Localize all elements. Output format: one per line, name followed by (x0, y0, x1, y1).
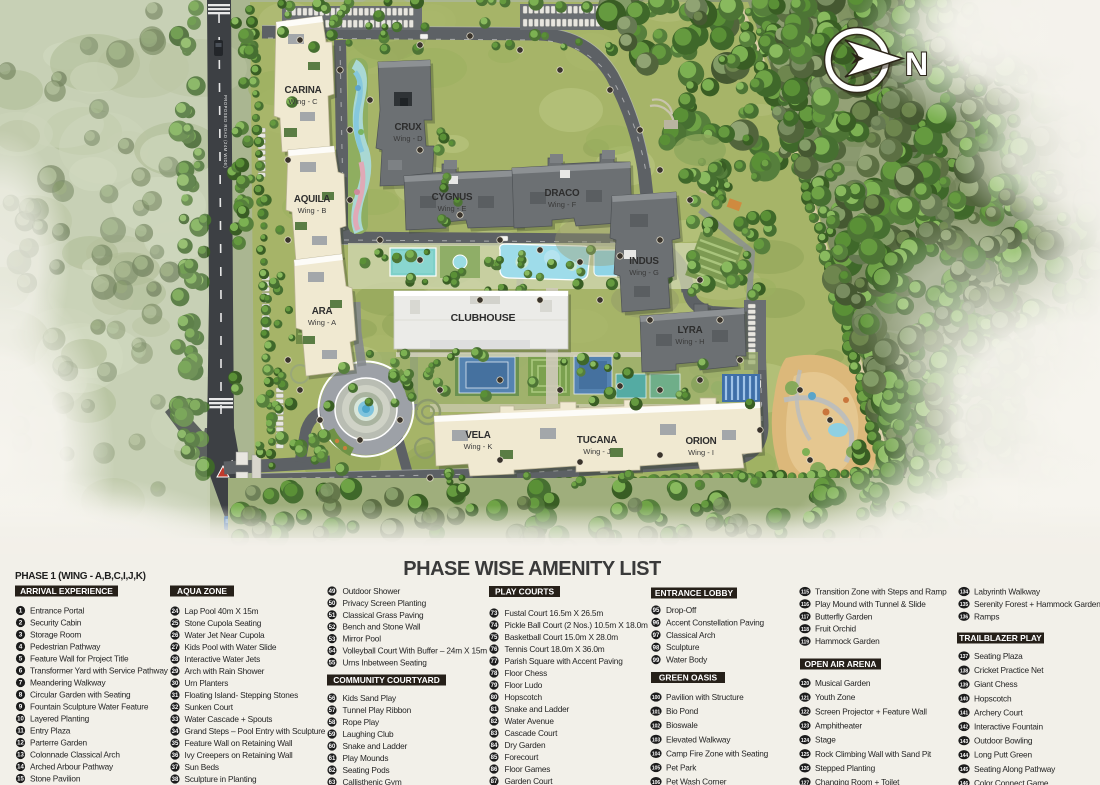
svg-text:Arch with Rain Shower: Arch with Rain Shower (185, 666, 265, 676)
svg-text:Long Putt Green: Long Putt Green (974, 750, 1032, 760)
svg-text:Callisthenic Gym: Callisthenic Gym (343, 777, 402, 785)
svg-text:Feature Wall for Project Title: Feature Wall for Project Title (30, 654, 129, 664)
svg-text:8: 8 (19, 692, 23, 699)
svg-text:Floor Ludo: Floor Ludo (505, 680, 543, 690)
svg-text:Floating Island- Stepping Ston: Floating Island- Stepping Stones (185, 690, 299, 700)
svg-text:105: 105 (652, 766, 661, 772)
svg-text:63: 63 (329, 780, 336, 785)
svg-text:7: 7 (19, 680, 23, 687)
svg-text:95: 95 (653, 608, 660, 614)
svg-text:81: 81 (491, 707, 498, 713)
svg-text:TRAILBLAZER PLAY: TRAILBLAZER PLAY (959, 633, 1042, 643)
svg-text:Wing - E: Wing - E (438, 204, 467, 213)
svg-text:CYGNUS: CYGNUS (432, 192, 473, 203)
svg-text:ARA: ARA (312, 306, 333, 317)
svg-text:134: 134 (960, 590, 969, 596)
svg-text:Security Cabin: Security Cabin (30, 618, 82, 628)
svg-text:Outdoor Shower: Outdoor Shower (343, 586, 401, 596)
svg-text:52: 52 (329, 625, 336, 631)
svg-text:Colonnade Classical Arch: Colonnade Classical Arch (30, 750, 120, 760)
svg-text:Pedestrian Pathway: Pedestrian Pathway (30, 642, 101, 652)
svg-text:87: 87 (491, 779, 498, 785)
svg-text:115: 115 (801, 590, 809, 596)
svg-text:Sculpture: Sculpture (666, 642, 700, 652)
svg-text:140: 140 (960, 697, 969, 703)
svg-text:Garden Court: Garden Court (505, 776, 554, 785)
svg-text:Basketball Court 15.0m X 28.0m: Basketball Court 15.0m X 28.0m (505, 632, 619, 642)
svg-text:58: 58 (329, 720, 336, 726)
svg-text:101: 101 (652, 709, 661, 715)
svg-text:PROPOSED ROAD (24M WIDE): PROPOSED ROAD (24M WIDE) (223, 95, 228, 168)
svg-text:76: 76 (491, 647, 498, 653)
svg-text:Arched Arbour Pathway: Arched Arbour Pathway (30, 762, 114, 772)
svg-text:Cascade Court: Cascade Court (505, 728, 559, 738)
svg-text:80: 80 (491, 695, 498, 701)
svg-text:29: 29 (172, 669, 179, 675)
svg-text:Rope Play: Rope Play (343, 717, 381, 727)
svg-text:24: 24 (172, 609, 179, 615)
svg-text:Wing - H: Wing - H (675, 337, 704, 346)
svg-text:28: 28 (172, 657, 179, 663)
svg-text:36: 36 (172, 753, 179, 759)
svg-text:74: 74 (491, 623, 498, 629)
svg-text:142: 142 (960, 725, 969, 731)
svg-text:AQUA ZONE: AQUA ZONE (177, 586, 227, 596)
svg-text:Volleyball Court With Buffer –: Volleyball Court With Buffer – 24m X 15m (343, 646, 488, 656)
svg-text:122: 122 (801, 710, 810, 716)
svg-text:Wing - G: Wing - G (629, 268, 659, 277)
svg-text:Screen Projector + Feature Wal: Screen Projector + Feature Wall (815, 706, 927, 716)
svg-text:Seating Along Pathway: Seating Along Pathway (974, 764, 1056, 774)
svg-text:137: 137 (960, 654, 969, 660)
svg-text:Snake and Ladder: Snake and Ladder (505, 704, 570, 714)
svg-text:Stepped Planting: Stepped Planting (815, 763, 876, 773)
svg-text:Play Mound with Tunnel & Slide: Play Mound with Tunnel & Slide (815, 599, 926, 609)
svg-text:38: 38 (172, 777, 179, 783)
svg-text:Sculpture in Planting: Sculpture in Planting (185, 774, 257, 784)
svg-text:Elevated Walkway: Elevated Walkway (666, 734, 731, 744)
svg-text:Interactive Fountain: Interactive Fountain (974, 722, 1043, 732)
svg-text:PHASE WISE AMENITY LIST: PHASE WISE AMENITY LIST (403, 558, 661, 580)
svg-text:Hopscotch: Hopscotch (505, 692, 543, 702)
svg-text:GREEN OASIS: GREEN OASIS (659, 673, 718, 683)
svg-text:Entrance Portal: Entrance Portal (30, 606, 85, 616)
svg-text:Seating Pods: Seating Pods (343, 765, 390, 775)
svg-text:Color Connect Game: Color Connect Game (974, 778, 1049, 785)
svg-text:103: 103 (652, 738, 661, 744)
svg-text:N: N (905, 46, 928, 82)
svg-text:Stage: Stage (815, 735, 836, 745)
svg-text:Meandering Walkway: Meandering Walkway (30, 678, 106, 688)
svg-text:Wing - J: Wing - J (583, 447, 611, 456)
svg-text:Wing - F: Wing - F (548, 200, 577, 209)
svg-text:Interactive Water Jets: Interactive Water Jets (185, 654, 261, 664)
svg-text:Accent Constellation Paving: Accent Constellation Paving (666, 617, 764, 627)
svg-text:Amphitheater: Amphitheater (815, 720, 862, 730)
svg-text:OPEN AIR ARENA: OPEN AIR ARENA (805, 659, 877, 669)
svg-text:Rock Climbing Wall with Sand P: Rock Climbing Wall with Sand Pit (815, 749, 932, 759)
svg-text:Play Mounds: Play Mounds (343, 753, 389, 763)
svg-text:50: 50 (329, 601, 336, 607)
svg-text:Musical Garden: Musical Garden (815, 678, 871, 688)
svg-text:96: 96 (653, 621, 660, 627)
svg-text:51: 51 (329, 613, 336, 619)
svg-text:83: 83 (491, 731, 498, 737)
svg-text:102: 102 (652, 723, 661, 729)
svg-text:CLUBHOUSE: CLUBHOUSE (451, 312, 516, 324)
svg-text:Pet Wash Corner: Pet Wash Corner (666, 777, 727, 785)
svg-text:COMMUNITY COURTYARD: COMMUNITY COURTYARD (333, 675, 440, 685)
svg-text:Kids Sand Play: Kids Sand Play (343, 693, 398, 703)
svg-text:Serenity Forest + Hammock Gard: Serenity Forest + Hammock Garden (974, 599, 1100, 609)
svg-text:Bioswale: Bioswale (666, 720, 698, 730)
svg-text:Lap Pool 40m X 15m: Lap Pool 40m X 15m (185, 606, 259, 616)
svg-text:Wing - A: Wing - A (308, 318, 336, 327)
svg-text:12: 12 (17, 741, 24, 747)
svg-text:54: 54 (329, 649, 336, 655)
svg-text:Urns Inbetween Seating: Urns Inbetween Seating (343, 657, 428, 667)
svg-text:143: 143 (960, 739, 969, 745)
svg-text:Butterfly Garden: Butterfly Garden (815, 611, 873, 621)
svg-text:Privacy Screen Planting: Privacy Screen Planting (343, 598, 427, 608)
svg-text:10: 10 (17, 717, 24, 723)
svg-text:Feature Wall on Retaining Wall: Feature Wall on Retaining Wall (185, 738, 293, 748)
svg-text:141: 141 (960, 711, 969, 717)
svg-text:Transition Zone with Steps and: Transition Zone with Steps and Ramp (815, 587, 947, 597)
svg-text:Stone Pavilion: Stone Pavilion (30, 774, 81, 784)
svg-text:Labyrinth Walkway: Labyrinth Walkway (974, 587, 1041, 597)
svg-text:Wing - B: Wing - B (298, 206, 327, 215)
svg-text:9: 9 (19, 704, 23, 711)
svg-text:Changing Room + Toilet: Changing Room + Toilet (815, 777, 900, 785)
svg-text:55: 55 (329, 661, 336, 667)
svg-text:139: 139 (960, 682, 969, 688)
svg-text:PLAY COURTS: PLAY COURTS (495, 587, 555, 597)
svg-text:Floor Games: Floor Games (505, 764, 551, 774)
svg-text:6: 6 (19, 668, 23, 675)
svg-text:97: 97 (653, 633, 660, 639)
svg-text:Circular Garden with Seating: Circular Garden with Seating (30, 690, 131, 700)
svg-text:4: 4 (19, 644, 23, 651)
svg-text:30: 30 (172, 681, 179, 687)
svg-text:Entry Plaza: Entry Plaza (30, 726, 71, 736)
svg-text:Stone Cupola Seating: Stone Cupola Seating (185, 618, 262, 628)
svg-text:61: 61 (329, 756, 336, 762)
svg-text:1: 1 (19, 608, 23, 615)
svg-text:35: 35 (172, 741, 179, 747)
svg-text:CARINA: CARINA (285, 85, 322, 96)
svg-text:Water Body: Water Body (666, 655, 708, 665)
svg-text:116: 116 (801, 602, 809, 608)
svg-text:26: 26 (172, 633, 179, 639)
svg-text:5: 5 (19, 656, 23, 663)
svg-text:Layered Planting: Layered Planting (30, 714, 90, 724)
svg-text:79: 79 (491, 683, 498, 689)
svg-text:Bench and Stone Wall: Bench and Stone Wall (343, 622, 421, 632)
svg-text:75: 75 (491, 635, 498, 641)
svg-text:135: 135 (960, 602, 969, 608)
svg-text:Fruit Orchid: Fruit Orchid (815, 624, 857, 634)
svg-text:27: 27 (172, 645, 179, 651)
svg-text:Dry Garden: Dry Garden (505, 740, 546, 750)
svg-text:59: 59 (329, 732, 336, 738)
svg-text:TUCANA: TUCANA (577, 435, 617, 446)
svg-text:Fustal Court 16.5m X 26.5m: Fustal Court 16.5m X 26.5m (505, 608, 604, 618)
svg-text:Parish Square with Accent Pavi: Parish Square with Accent Paving (505, 656, 624, 666)
svg-text:Archery Court: Archery Court (974, 707, 1023, 717)
svg-text:100: 100 (652, 695, 661, 701)
svg-text:Hopscotch: Hopscotch (974, 693, 1012, 703)
svg-text:15: 15 (17, 777, 24, 783)
svg-text:57: 57 (329, 708, 336, 714)
svg-text:Sun Beds: Sun Beds (185, 762, 219, 772)
svg-text:13: 13 (17, 753, 24, 759)
svg-text:Ivy Creepers on Retaining Wall: Ivy Creepers on Retaining Wall (185, 750, 293, 760)
svg-text:Tunnel Play Ribbon: Tunnel Play Ribbon (343, 705, 412, 715)
svg-text:Urn Planters: Urn Planters (185, 678, 229, 688)
svg-text:136: 136 (960, 615, 969, 621)
svg-text:Water Cascade + Spouts: Water Cascade + Spouts (185, 714, 273, 724)
svg-text:14: 14 (17, 765, 24, 771)
svg-text:Wing - I: Wing - I (688, 448, 714, 457)
svg-text:53: 53 (329, 637, 336, 643)
svg-text:73: 73 (491, 611, 498, 617)
svg-text:125: 125 (801, 752, 810, 758)
svg-text:ENTRANCE LOBBY: ENTRANCE LOBBY (655, 588, 734, 598)
svg-text:85: 85 (491, 755, 498, 761)
svg-text:124: 124 (801, 738, 810, 744)
svg-text:99: 99 (653, 658, 660, 664)
svg-text:Parterre Garden: Parterre Garden (30, 738, 88, 748)
svg-text:34: 34 (172, 729, 179, 735)
svg-text:123: 123 (801, 724, 810, 730)
svg-text:Wing - K: Wing - K (464, 442, 493, 451)
svg-text:AQUILA: AQUILA (294, 194, 330, 205)
svg-text:Drop-Off: Drop-Off (666, 605, 697, 615)
svg-text:Transformer Yard with Service: Transformer Yard with Service Pathway (30, 666, 169, 676)
svg-text:Laughing Club: Laughing Club (343, 729, 394, 739)
svg-text:Snake and Ladder: Snake and Ladder (343, 741, 408, 751)
svg-text:3: 3 (19, 632, 23, 639)
svg-text:ORION: ORION (685, 436, 716, 447)
svg-text:78: 78 (491, 671, 498, 677)
svg-text:77: 77 (491, 659, 498, 665)
svg-text:Seating Plaza: Seating Plaza (974, 651, 1023, 661)
svg-text:Pavilion with Structure: Pavilion with Structure (666, 692, 744, 702)
svg-text:Cricket Practice Net: Cricket Practice Net (974, 665, 1044, 675)
svg-text:2: 2 (19, 620, 23, 627)
svg-text:Floor Chess: Floor Chess (505, 668, 548, 678)
svg-text:Mirror Pool: Mirror Pool (343, 634, 382, 644)
svg-text:86: 86 (491, 767, 498, 773)
svg-text:Ramps: Ramps (974, 611, 999, 621)
svg-text:117: 117 (801, 615, 809, 621)
svg-text:INDUS: INDUS (629, 256, 659, 267)
svg-text:126: 126 (801, 766, 810, 772)
svg-text:145: 145 (960, 767, 969, 773)
svg-text:CRUX: CRUX (395, 122, 423, 133)
svg-text:106: 106 (652, 780, 661, 785)
svg-text:Wing - D: Wing - D (393, 134, 423, 143)
svg-text:119: 119 (801, 639, 809, 645)
svg-text:Kids Pool with Water Slide: Kids Pool with Water Slide (185, 642, 277, 652)
svg-text:Outdoor Bowling: Outdoor Bowling (974, 736, 1033, 746)
svg-text:Grand Steps – Pool Entry with: Grand Steps – Pool Entry with Sculpture (185, 726, 326, 736)
svg-text:Sunken Court: Sunken Court (185, 702, 234, 712)
svg-text:Tennis Court 18.0m X 36.0m: Tennis Court 18.0m X 36.0m (505, 644, 605, 654)
svg-text:146: 146 (960, 781, 969, 785)
svg-text:127: 127 (801, 780, 810, 785)
svg-text:98: 98 (653, 645, 660, 651)
svg-text:138: 138 (960, 668, 969, 674)
svg-text:56: 56 (329, 696, 336, 702)
svg-text:Camp Fire Zone with Seating: Camp Fire Zone with Seating (666, 748, 769, 758)
svg-text:Water Jet Near Cupola: Water Jet Near Cupola (185, 630, 265, 640)
svg-text:Classical Grass Paving: Classical Grass Paving (343, 610, 424, 620)
svg-text:Pet Park: Pet Park (666, 763, 697, 773)
svg-text:Classical Arch: Classical Arch (666, 630, 716, 640)
svg-text:Forecourt: Forecourt (505, 752, 540, 762)
svg-text:Storage Room: Storage Room (30, 630, 81, 640)
svg-text:49: 49 (329, 589, 336, 595)
svg-text:Fountain Sculpture Water Featu: Fountain Sculpture Water Feature (30, 702, 149, 712)
svg-text:Giant Chess: Giant Chess (974, 679, 1018, 689)
svg-text:60: 60 (329, 744, 336, 750)
svg-text:Hammock Garden: Hammock Garden (815, 636, 880, 646)
svg-text:DRACO: DRACO (545, 188, 581, 199)
svg-text:121: 121 (801, 695, 810, 701)
svg-text:VELA: VELA (465, 430, 490, 441)
svg-text:Bio Pond: Bio Pond (666, 706, 699, 716)
svg-text:Youth Zone: Youth Zone (815, 692, 856, 702)
svg-text:Pickle Ball Court (2 Nos.) 10.: Pickle Ball Court (2 Nos.) 10.5m X 18.0m (505, 620, 649, 630)
svg-text:82: 82 (491, 719, 498, 725)
svg-text:37: 37 (172, 765, 179, 771)
svg-text:ARRIVAL EXPERIENCE: ARRIVAL EXPERIENCE (20, 586, 113, 596)
svg-text:11: 11 (17, 729, 24, 735)
svg-text:104: 104 (652, 752, 661, 758)
svg-text:84: 84 (491, 743, 498, 749)
svg-text:62: 62 (329, 768, 336, 774)
svg-text:118: 118 (801, 627, 809, 633)
svg-text:33: 33 (172, 717, 179, 723)
svg-text:25: 25 (172, 621, 179, 627)
svg-text:120: 120 (801, 681, 810, 687)
svg-text:Water Avenue: Water Avenue (505, 716, 555, 726)
svg-text:31: 31 (172, 693, 179, 699)
svg-text:LYRA: LYRA (678, 325, 703, 336)
svg-text:144: 144 (960, 753, 969, 759)
svg-text:32: 32 (172, 705, 179, 711)
svg-text:PHASE 1 (WING - A,B,C,I,J,K): PHASE 1 (WING - A,B,C,I,J,K) (15, 571, 146, 582)
svg-text:Wing - C: Wing - C (288, 97, 318, 106)
